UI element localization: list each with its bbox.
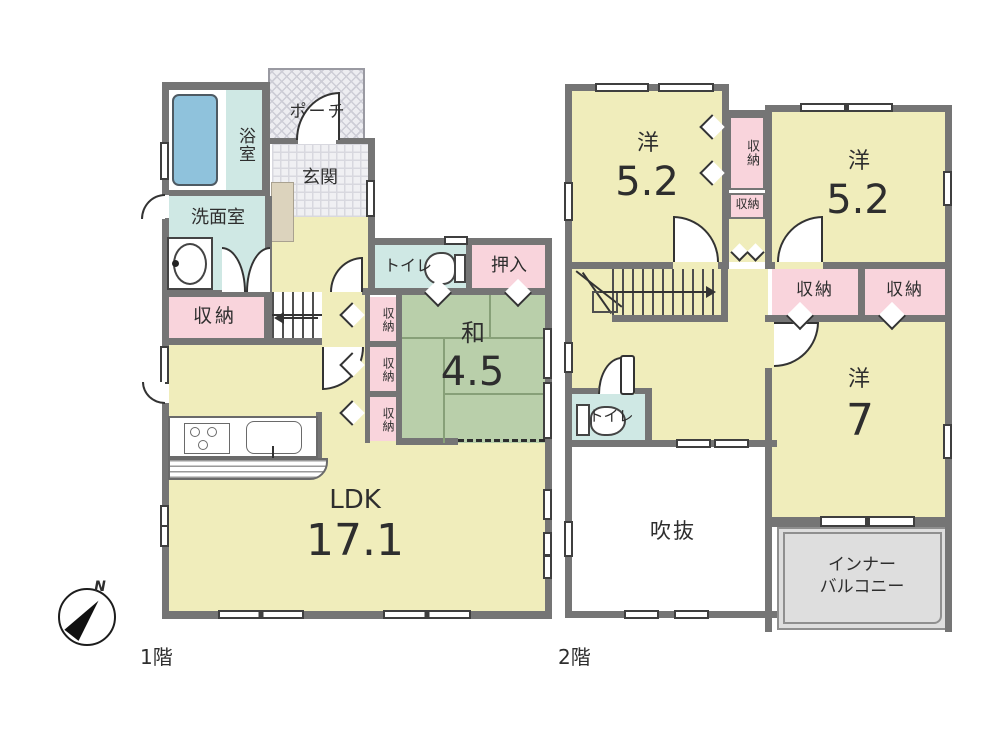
window — [943, 171, 952, 206]
stairs-1f-arrow-shaft — [282, 317, 318, 319]
door-arc-exterior-washroom — [141, 194, 165, 219]
stairs-2f-landing-box — [592, 291, 618, 313]
window — [800, 103, 893, 112]
window — [714, 439, 749, 448]
door-leaf-toilet-2f — [620, 355, 635, 395]
porch-label: ポーチ — [287, 103, 349, 123]
western-b-label: 洋 — [844, 150, 874, 176]
storage-small-3-label: 収納 — [372, 401, 394, 439]
window — [543, 489, 552, 520]
window — [595, 83, 649, 92]
wall — [162, 190, 270, 196]
wall — [572, 388, 598, 394]
window — [624, 610, 659, 619]
window — [543, 328, 552, 379]
floor2-label: 2階 — [558, 646, 612, 672]
burner-icon — [190, 427, 200, 437]
ldk-size: 17.1 — [300, 516, 410, 568]
storage-small-2f-label: 収納 — [730, 198, 765, 214]
toilet-tank-icon — [454, 254, 466, 283]
kitchen-sink — [246, 421, 302, 454]
window — [564, 182, 573, 221]
oshiire-label: 押入 — [481, 256, 537, 276]
window — [676, 439, 711, 448]
faucet-icon — [272, 446, 274, 458]
entrance-label: 玄関 — [297, 168, 343, 188]
window — [160, 142, 169, 180]
open-boundary-dashed — [458, 439, 545, 442]
wall — [368, 341, 398, 347]
wall — [823, 262, 952, 269]
japanese-room-size: 4.5 — [425, 350, 520, 398]
inner-balcony-label-line2: バルコニー — [812, 578, 912, 598]
japanese-room-label: 和 — [458, 320, 488, 348]
shoe-cabinet — [271, 182, 294, 242]
wall — [162, 82, 270, 90]
inner-balcony-label-line1: インナー — [822, 556, 902, 576]
tatami-line-2 — [489, 295, 491, 338]
storage-b-2f-label: 収納 — [873, 281, 937, 303]
floor-plan: 浴室 洗面室 ポーチ 玄関 トイレ 押入 収納 収納 収納 収納 和 4.5 L… — [0, 0, 1000, 750]
western-c-label: 洋 — [844, 368, 874, 394]
stairs-2f-arrow-head — [706, 286, 716, 298]
storage-small-2-label: 収納 — [372, 351, 394, 389]
door-gap — [765, 322, 772, 368]
western-a-label: 洋 — [633, 132, 663, 158]
window — [160, 346, 169, 384]
toilet-2f-label: トイレ — [582, 408, 640, 426]
washroom-label: 洗面室 — [172, 208, 264, 230]
stairs-1f-arrow-head — [274, 312, 284, 324]
wall — [368, 245, 375, 288]
compass-north-label: N — [90, 580, 110, 598]
wall — [368, 391, 398, 397]
door-arc-ldk-exterior — [142, 382, 165, 404]
wall — [858, 262, 865, 315]
window — [943, 424, 952, 459]
storage-tall-2f-label: 収納 — [736, 127, 758, 179]
window — [543, 382, 552, 439]
western-c-size: 7 — [838, 396, 882, 446]
ldk-label: LDK — [320, 486, 390, 514]
window — [564, 521, 573, 557]
storage-1f-label: 収納 — [182, 306, 248, 328]
wall — [635, 388, 645, 394]
wall — [645, 388, 652, 447]
wall — [365, 292, 370, 443]
wall — [612, 315, 728, 322]
stairs-2f-arrow-shaft — [600, 291, 708, 293]
window — [543, 532, 552, 579]
door-gap — [673, 262, 718, 269]
window — [383, 610, 471, 619]
kitchen-counter-front — [168, 458, 328, 480]
wall — [765, 105, 772, 262]
window — [218, 610, 304, 619]
window — [444, 236, 468, 245]
burner-icon — [207, 427, 217, 437]
wall — [466, 245, 472, 288]
burner-icon — [198, 440, 208, 450]
wall — [721, 262, 728, 322]
wall — [765, 368, 772, 632]
door-gap — [775, 262, 823, 269]
wall — [162, 338, 322, 345]
void-label: 吹抜 — [644, 520, 702, 544]
wall — [336, 138, 375, 144]
window — [674, 610, 709, 619]
floor1-label: 1階 — [140, 646, 194, 672]
window — [366, 180, 375, 217]
vanity-faucet-icon — [172, 260, 179, 267]
wall — [396, 438, 458, 445]
window — [658, 83, 714, 92]
window — [160, 505, 169, 547]
window — [564, 342, 573, 373]
wall — [396, 292, 402, 443]
storage-small-1-label: 収納 — [372, 301, 394, 339]
storage-a-2f-label: 収納 — [783, 281, 847, 303]
wall — [565, 611, 777, 618]
wall — [565, 262, 673, 269]
toilet-1f-label: トイレ — [378, 257, 438, 275]
door-gap — [322, 338, 362, 345]
western-a-size: 5.2 — [597, 160, 697, 208]
window — [820, 516, 915, 527]
wall — [765, 262, 775, 269]
bathroom-label: 浴室 — [232, 112, 254, 178]
western-b-size: 5.2 — [808, 178, 908, 226]
wall — [262, 138, 298, 144]
bathtub — [172, 94, 218, 186]
